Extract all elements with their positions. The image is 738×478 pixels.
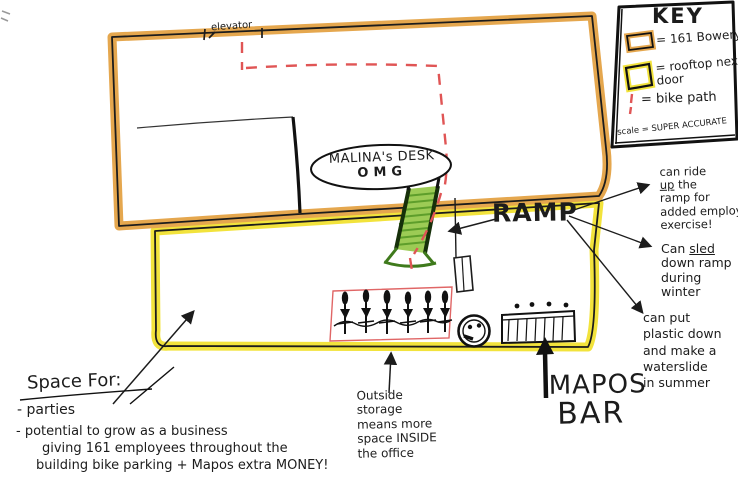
malina-desk-label: MALINA's DESK OMG [313,148,452,183]
note-sled-line: winter [661,285,732,299]
ramp-label: RAMP [492,197,578,227]
arrow-mapos-bar-shaft [545,352,546,398]
bar-stool-dot [564,303,569,308]
bar-line: BAR [557,395,647,432]
sketch-page: elevator MALINA's DESK OMG RAMP can ride… [0,0,738,478]
wall-stub-line [455,198,456,258]
mapos-bar-label: MAPOS BAR [548,369,647,432]
space-for-heading: Space For: [27,369,122,393]
bar-outline [502,311,575,343]
space-for-bullet-potential: - potential to grow as a business giving… [16,423,328,474]
note-waterslide: can put plastic down and make a watersli… [643,310,722,391]
bullet-line: - potential to grow as a business [16,423,328,440]
note-outside-storage: Outside storage means more space INSIDE … [356,387,437,460]
note-ride-line: exercise! [660,217,738,232]
note-sled-line: Can sled [661,242,732,256]
key-label-bike-path: = bike path [641,90,717,108]
underlined-word: sled [689,241,715,256]
note-sled: Can sled down ramp during winter [661,242,732,300]
spool-table [459,316,490,347]
bar-stool-dot [515,304,520,309]
bullet-line: building bike parking + Mapos extra MONE… [36,457,328,474]
note-sled-line: down ramp [661,256,732,270]
note-ride-line: can ride [659,164,738,179]
note-ride: can ride up the ramp for added employee … [659,164,738,232]
bar-stool-dot [530,302,535,307]
bowery-outline-highlight [112,16,607,226]
bullet-line: giving 161 employees throughout the [42,440,328,457]
note-ride-word: the [678,177,697,191]
space-for-bullet-parties: - parties [17,402,75,418]
underlined-word: up [660,178,675,192]
key-title: KEY [652,4,704,28]
note-sled-line: during [661,271,732,285]
bar-stool-dot [547,302,552,307]
pen-smudge [1,4,715,21]
note-sled-word: Can [661,241,685,256]
